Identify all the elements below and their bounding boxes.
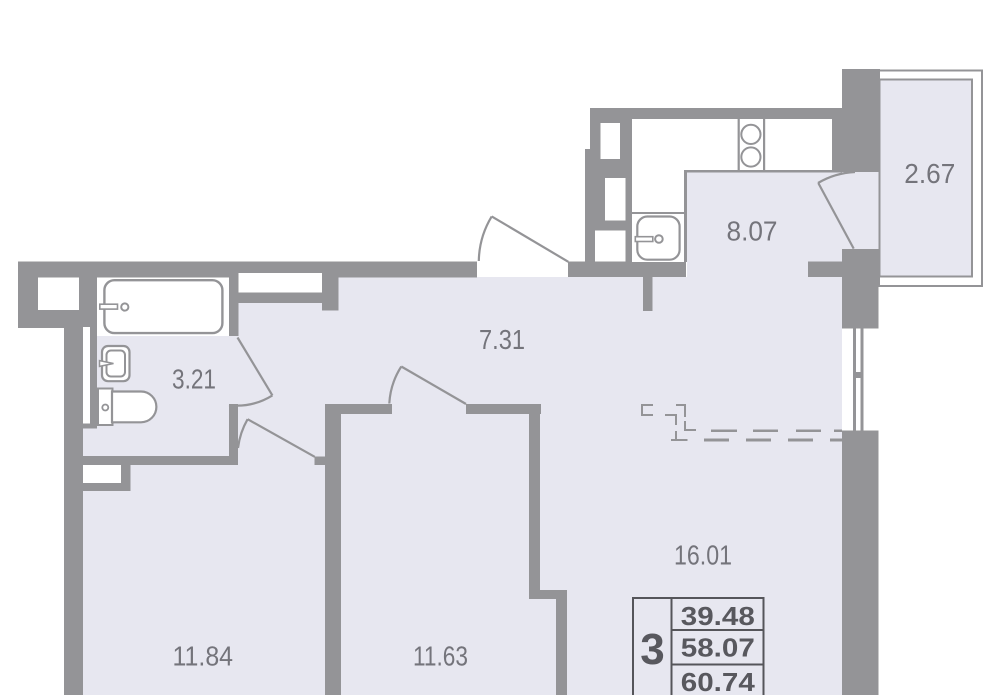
- svg-text:39.48: 39.48: [681, 601, 755, 631]
- svg-text:11.84: 11.84: [173, 641, 234, 672]
- svg-text:3.21: 3.21: [172, 364, 216, 395]
- svg-text:16.01: 16.01: [674, 540, 732, 571]
- svg-text:7.31: 7.31: [479, 324, 525, 355]
- svg-text:3: 3: [640, 625, 664, 674]
- svg-text:11.63: 11.63: [413, 641, 468, 672]
- svg-text:8.07: 8.07: [727, 215, 778, 246]
- svg-text:2.67: 2.67: [904, 158, 955, 189]
- svg-text:58.07: 58.07: [681, 633, 755, 663]
- svg-text:60.74: 60.74: [681, 667, 756, 695]
